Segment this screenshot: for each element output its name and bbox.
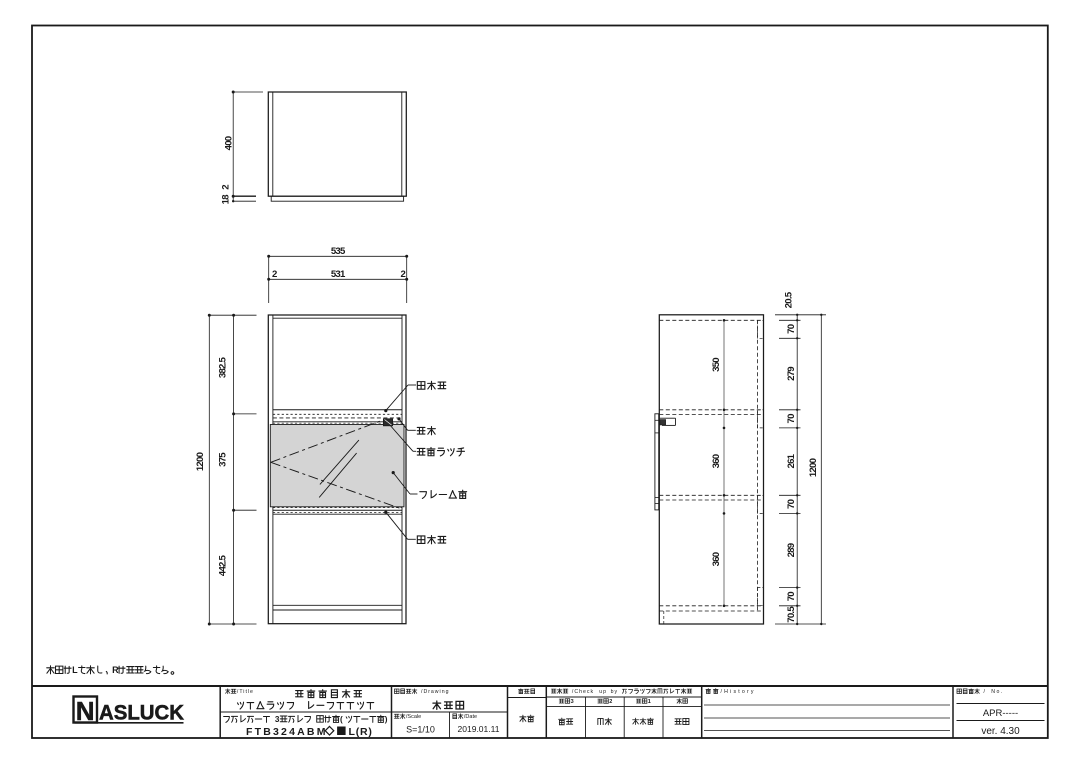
- svg-text:/Date: /Date: [464, 714, 477, 720]
- svg-text:18: 18: [220, 194, 231, 205]
- svg-text:2: 2: [272, 269, 277, 280]
- svg-text:1200: 1200: [195, 452, 206, 471]
- svg-text:/History: /History: [721, 689, 756, 695]
- svg-text:3: 3: [275, 715, 280, 724]
- svg-text:L: L: [72, 665, 78, 675]
- svg-text:261: 261: [786, 453, 797, 468]
- svg-text:442.5: 442.5: [218, 554, 229, 576]
- svg-text:360: 360: [711, 454, 722, 468]
- svg-text:400: 400: [223, 136, 234, 150]
- svg-text:No.: No.: [991, 689, 1004, 695]
- svg-text:ver. 4.30: ver. 4.30: [981, 726, 1020, 737]
- svg-text:up: up: [599, 689, 607, 695]
- svg-text:/Drawing: /Drawing: [421, 689, 449, 695]
- svg-text:531: 531: [331, 269, 346, 280]
- svg-text:70: 70: [786, 499, 797, 509]
- svg-text:70: 70: [786, 592, 797, 602]
- svg-text:3: 3: [571, 699, 574, 705]
- svg-text:L(R): L(R): [349, 726, 373, 738]
- svg-text:70.5: 70.5: [786, 606, 797, 623]
- svg-text:1: 1: [648, 699, 651, 705]
- svg-text:/Check: /Check: [572, 689, 594, 695]
- svg-text:S=1/10: S=1/10: [406, 725, 435, 735]
- svg-text:/Title: /Title: [237, 689, 254, 695]
- svg-text:/: /: [984, 689, 987, 695]
- svg-text:2: 2: [609, 699, 612, 705]
- svg-text:70: 70: [786, 324, 797, 334]
- svg-text:350: 350: [711, 358, 722, 372]
- svg-text:(: (: [340, 715, 343, 724]
- svg-text:289: 289: [786, 543, 797, 557]
- svg-text:360: 360: [711, 552, 722, 566]
- svg-text:R: R: [112, 665, 119, 675]
- svg-text:APR-----: APR-----: [983, 708, 1018, 719]
- svg-text:382.5: 382.5: [218, 356, 229, 378]
- svg-text:20.5: 20.5: [784, 291, 795, 308]
- svg-text:2: 2: [401, 269, 406, 280]
- svg-text:/Scale: /Scale: [406, 714, 421, 720]
- svg-text:279: 279: [786, 367, 797, 381]
- svg-text:FTB324ABM: FTB324ABM: [246, 726, 328, 738]
- svg-text:by: by: [611, 689, 618, 695]
- svg-text:N: N: [76, 696, 95, 726]
- svg-text:ASLUCK: ASLUCK: [99, 702, 184, 725]
- svg-text:535: 535: [331, 246, 346, 257]
- svg-text:1200: 1200: [808, 458, 819, 477]
- svg-text:70: 70: [786, 414, 797, 424]
- svg-text:): ): [385, 715, 388, 724]
- svg-text:2019.01.11: 2019.01.11: [458, 724, 500, 734]
- svg-text:2: 2: [220, 185, 231, 190]
- svg-text:375: 375: [218, 452, 229, 467]
